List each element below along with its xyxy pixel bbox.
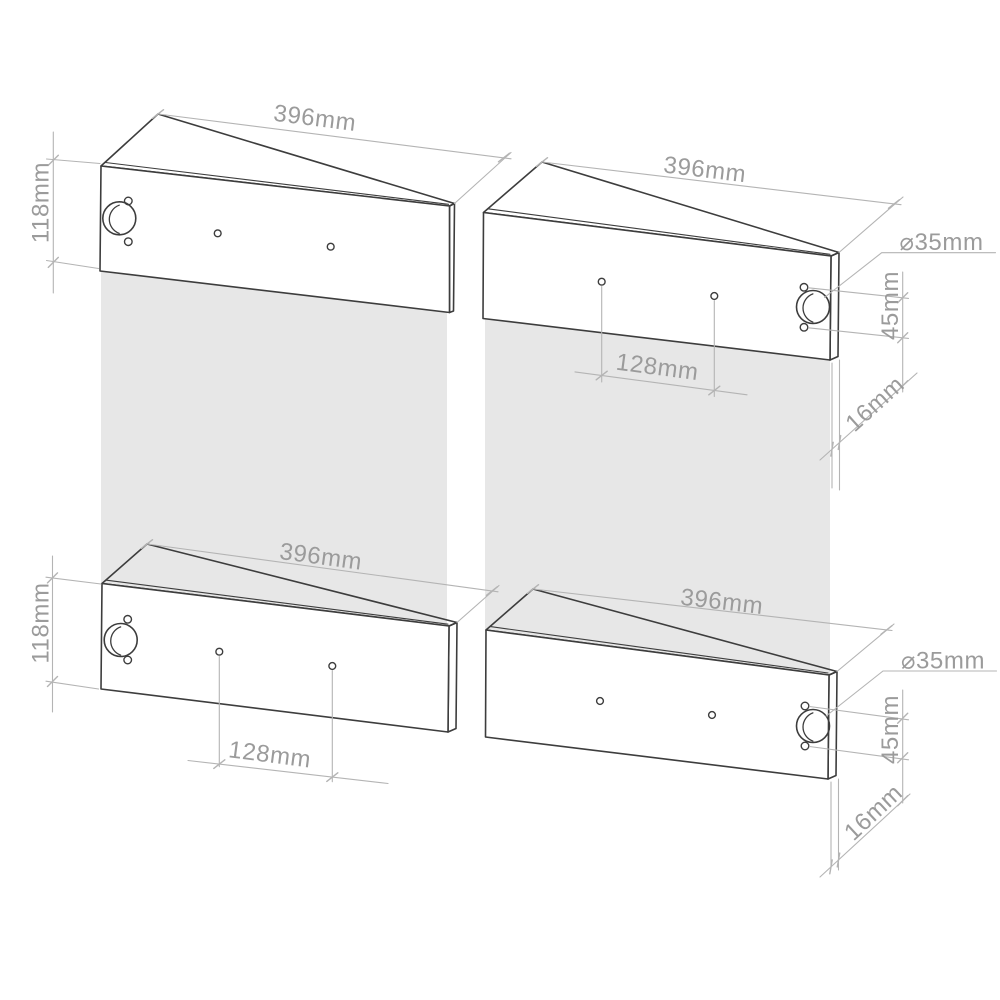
label-hole-offset-bottom-right: 45mm <box>877 695 904 764</box>
dim-height-top-left <box>47 132 101 293</box>
label-hole-diameter-top-right: ⌀35mm <box>899 229 983 256</box>
label-height-top-left: 118mm <box>27 162 54 243</box>
dim-hole-diameter-bottom-right <box>826 671 997 717</box>
label-height-bottom-left: 118mm <box>27 582 54 663</box>
panel-dimension-diagram: 396mm 118mm 396mm 128mm ⌀35mm 45mm 16mm … <box>0 0 1000 1000</box>
label-hole-offset-top-right: 45mm <box>877 271 904 340</box>
label-hole-diameter-bottom-right: ⌀35mm <box>901 647 985 674</box>
label-width-top-right: 396mm <box>662 152 748 189</box>
label-thickness-top-right: 16mm <box>840 371 909 437</box>
technical-drawing-canvas: 396mm 118mm 396mm 128mm ⌀35mm 45mm 16mm … <box>0 0 1000 1000</box>
shadow-band-left <box>101 272 447 626</box>
label-width-top-left: 396mm <box>272 100 358 137</box>
dim-hole-diameter-top-right <box>825 253 996 298</box>
label-hole-spacing-bottom-left: 128mm <box>227 736 313 773</box>
label-thickness-bottom-right: 16mm <box>839 779 908 846</box>
